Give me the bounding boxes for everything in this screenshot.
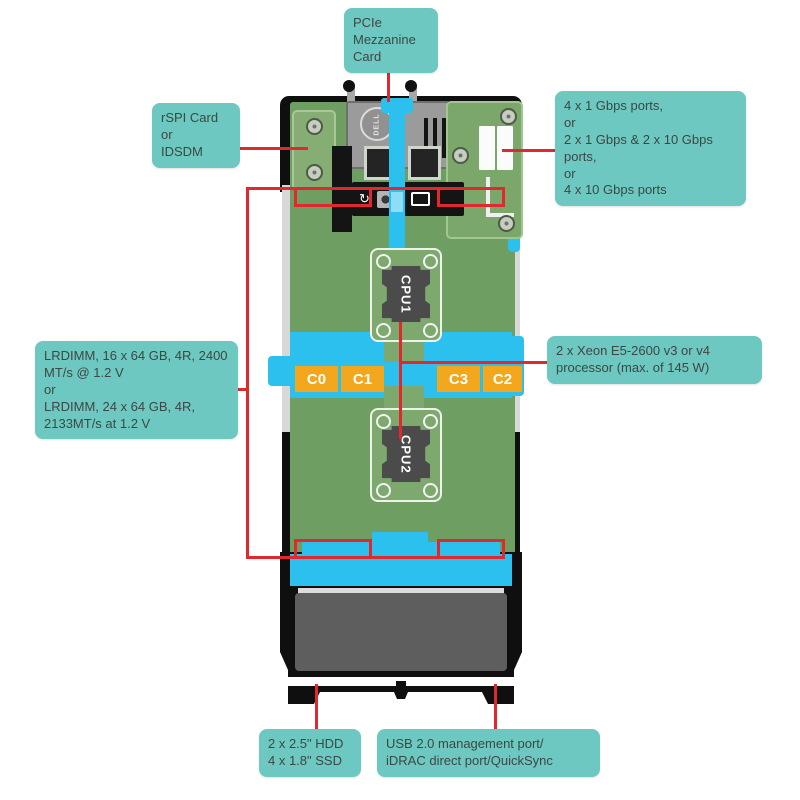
chip [408,146,441,180]
screw-icon [306,118,323,135]
annotation-line-usb [494,684,497,732]
callout-text: USB 2.0 management port/ [386,736,591,753]
callout-text: LRDIMM, 24 x 64 GB, 4R, 2133MT/s at 1.2 … [44,399,229,433]
callout-network-ports: 4 x 1 Gbps ports, or 2 x 1 Gbps & 2 x 10… [555,91,746,206]
callout-text: IDSDM [161,144,231,161]
dimm-slot [295,188,304,368]
dimm-slot [466,188,475,368]
port-connector [479,126,495,170]
release-latch-grip [391,192,403,212]
callout-hdd-ssd: 2 x 2.5" HDD 4 x 1.8" SSD [259,729,361,777]
screw-icon [423,254,438,269]
screw-icon [376,483,391,498]
callout-xeon-processor: 2 x Xeon E5-2600 v3 or v4 processor (max… [547,336,762,384]
channel-label-c0: C0 [295,366,338,392]
callout-text: 2 x Xeon E5-2600 v3 or v4 processor (max… [556,343,753,377]
channel-label-c2: C2 [483,366,522,392]
cpu-mount-tab [384,386,424,408]
release-latch [389,98,405,250]
guide-post-cap [405,80,417,92]
callout-text: LRDIMM, 16 x 64 GB, 4R, 2400 MT/s @ 1.2 … [44,348,229,382]
usb-icon [411,192,430,206]
annotation-line-rspi [240,147,308,150]
diagram-canvas: DELL ↻ [0,0,800,800]
annotation-bracket-dimm-br [437,539,505,559]
dimm-slot [453,188,462,368]
dimm-slot [507,392,516,570]
channel-label-c3: C3 [437,366,480,392]
callout-usb-idrac: USB 2.0 management port/ iDRAC direct po… [377,729,600,777]
callout-text: rSPI Card [161,110,231,127]
callout-text: 4 x 10 Gbps ports [564,182,737,199]
annotation-line-ports [502,149,556,152]
callout-text: or [44,382,229,399]
callout-text: 2 x 1 Gbps & 2 x 10 Gbps ports, [564,132,737,166]
dimm-bank [295,188,372,368]
screw-icon [306,164,323,181]
cpu1-carrier: CPU1 [370,248,442,342]
screw-icon [452,147,469,164]
dimm-slot [480,188,489,368]
annotation-line-xeon [400,361,548,364]
callout-text: 4 x 1.8" SSD [268,753,352,770]
rspi-idsdm-card [292,110,336,190]
channel-label-c1: C1 [341,366,384,392]
callout-rspi-idsdm: rSPI Card or IDSDM [152,103,240,168]
screw-icon [376,254,391,269]
callout-text: Mezzanine [353,32,429,49]
callout-text: or [564,115,737,132]
drive-bay [295,593,507,671]
annotation-bracket-dimm-tl [294,187,372,207]
dimm-slot [336,188,345,368]
callout-text: or [564,166,737,183]
annotation-bracket-dimm-tr [437,187,505,207]
screw-icon [376,414,391,429]
callout-text: or [161,127,231,144]
screw-icon [423,483,438,498]
cpu2-socket: CPU2 [382,426,430,482]
dimm-slot [507,188,516,368]
cpu2-carrier: CPU2 [370,408,442,502]
annotation-bracket-dimm-bl [294,539,372,559]
dimm-slot [322,188,331,368]
callout-text: iDRAC direct port/QuickSync [386,753,591,770]
front-panel-notch [396,681,406,687]
callout-text: Card [353,49,429,66]
dimm-slot [309,188,318,368]
annotation-line-cpu-vertical [399,322,402,439]
screw-icon [376,323,391,338]
screw-icon [500,108,517,125]
callout-text: 4 x 1 Gbps ports, [564,98,737,115]
cpu1-socket: CPU1 [382,266,430,322]
callout-pcie-mezzanine-card: PCIe Mezzanine Card [344,8,438,73]
cpu-mount-tab [384,340,424,362]
annotation-line-hdd [315,684,318,732]
guide-post-cap [343,80,355,92]
callout-lrdimm: LRDIMM, 16 x 64 GB, 4R, 2400 MT/s @ 1.2 … [35,341,238,439]
screw-icon [423,323,438,338]
dimm-bank [439,188,516,368]
port-connector [497,126,513,170]
annotation-line-lrdimm-vertical [246,187,249,559]
callout-text: PCIe [353,15,429,32]
callout-text: 2 x 2.5" HDD [268,736,352,753]
dimm-slot [349,188,358,368]
screw-icon [423,414,438,429]
dimm-slot [493,188,502,368]
